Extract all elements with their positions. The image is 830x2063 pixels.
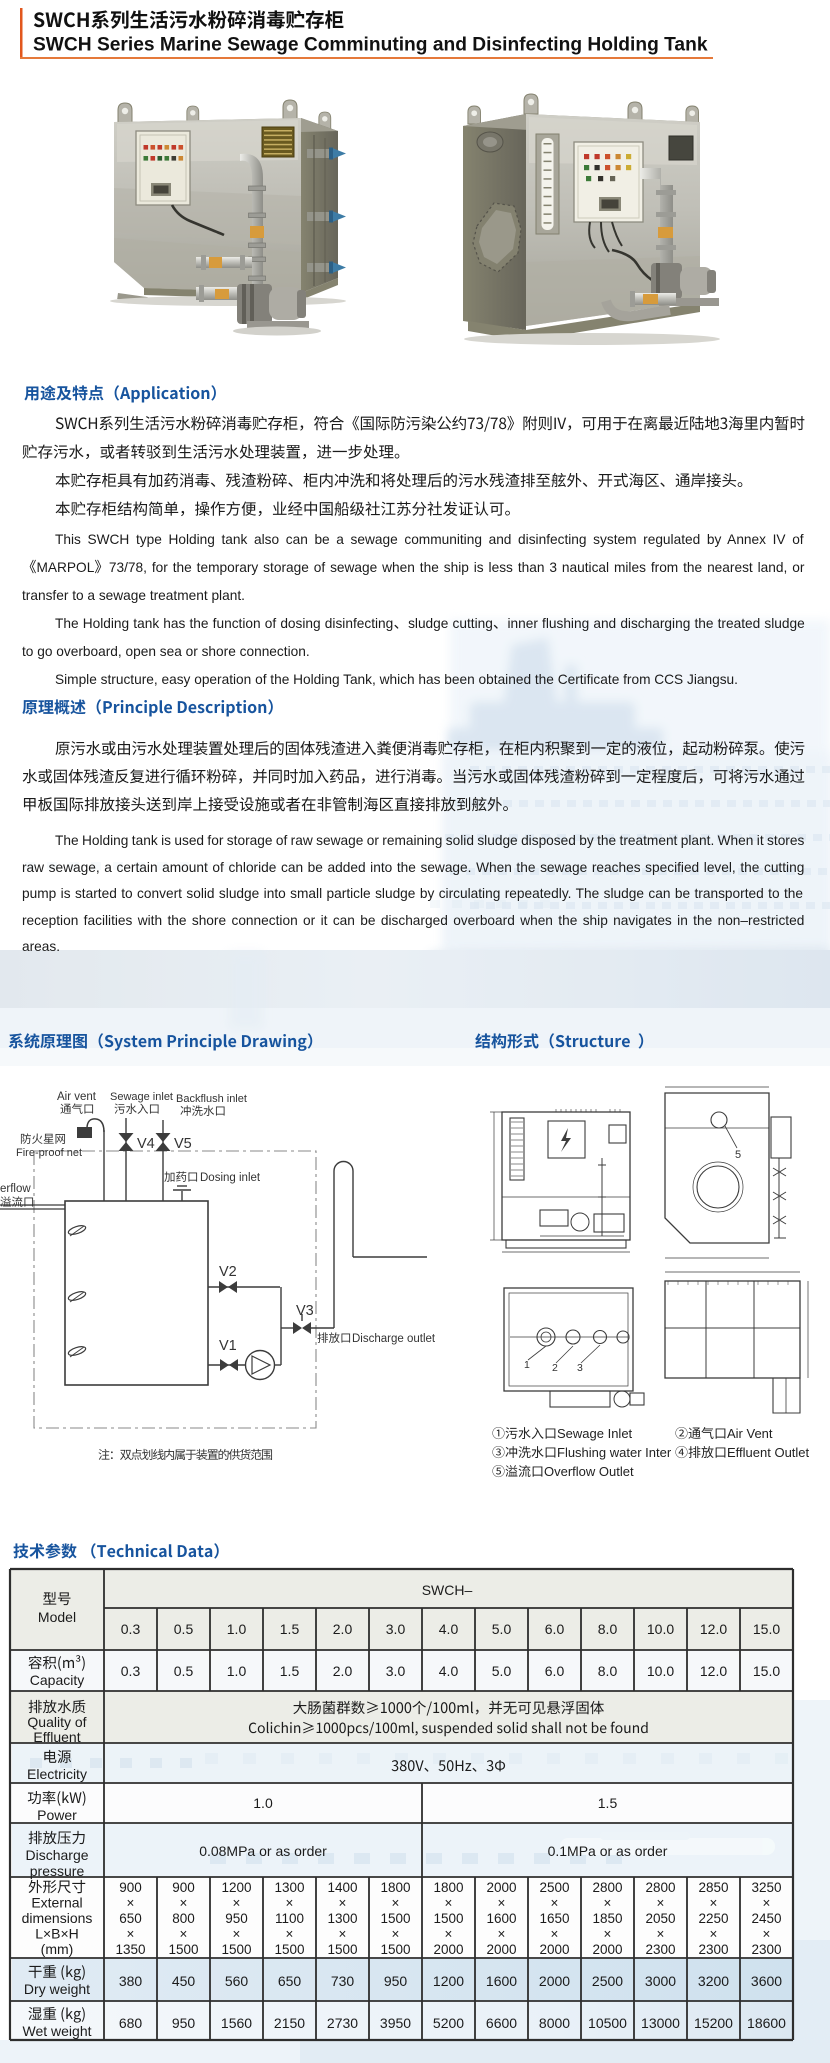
svg-text:1600: 1600 [486,1973,517,1989]
svg-text:1500: 1500 [168,1942,198,1957]
svg-text:1.5: 1.5 [598,1795,618,1811]
svg-text:areas.: areas. [22,939,60,954]
svg-text:×: × [286,1896,294,1911]
svg-text:×: × [498,1927,506,1942]
svg-text:Simple structure, easy operati: Simple structure, easy operation of the … [55,672,738,687]
svg-text:L×B×H: L×B×H [35,1926,79,1942]
svg-text:×: × [339,1927,347,1942]
svg-text:1200: 1200 [221,1880,251,1895]
svg-text:1500: 1500 [327,1942,357,1957]
svg-text:2.0: 2.0 [333,1621,353,1637]
svg-text:Capacity: Capacity [30,1672,84,1688]
svg-text:×: × [392,1927,400,1942]
svg-text:1: 1 [524,1359,530,1371]
svg-text:transfer to a sewage treatment: transfer to a sewage treatment plant. [22,588,245,603]
svg-text:2050: 2050 [645,1911,675,1926]
svg-text:Discharge outlet: Discharge outlet [352,1333,436,1345]
svg-text:0.3: 0.3 [121,1621,141,1637]
svg-text:dimensions: dimensions [22,1910,93,1926]
svg-text:2000: 2000 [539,1942,569,1957]
svg-text:×: × [710,1927,718,1942]
svg-text:1.0: 1.0 [227,1663,247,1679]
svg-text:MARPOL: MARPOL [37,560,95,575]
svg-text:13000: 13000 [641,2015,680,2031]
svg-text:×: × [498,1896,506,1911]
svg-text:6.0: 6.0 [545,1621,565,1637]
svg-text:1300: 1300 [327,1911,357,1926]
svg-text:1200: 1200 [433,1973,464,1989]
svg-text:3.0: 3.0 [386,1663,406,1679]
svg-text:3250: 3250 [751,1880,781,1895]
svg-text:Sewage inlet: Sewage inlet [110,1091,173,1103]
svg-text:1500: 1500 [433,1911,463,1926]
svg-text:×: × [180,1927,188,1942]
svg-text:Sewage Inlet: Sewage Inlet [557,1426,633,1441]
svg-text:×: × [180,1896,188,1911]
svg-text:Air Vent: Air Vent [727,1426,773,1441]
svg-text:×: × [551,1927,559,1942]
svg-text:Power: Power [37,1807,77,1823]
svg-text:3.0: 3.0 [386,1621,406,1637]
svg-text:650: 650 [119,1911,142,1926]
svg-text:reception facilities with the: reception facilities with the shore conn… [22,913,804,928]
svg-text:950: 950 [172,2015,196,2031]
svg-text:2300: 2300 [698,1942,728,1957]
svg-text:730: 730 [331,1973,355,1989]
svg-text:0.5: 0.5 [174,1663,194,1679]
svg-text:×: × [710,1896,718,1911]
svg-text:2500: 2500 [539,1880,569,1895]
svg-text:2500: 2500 [592,1973,623,1989]
svg-text:×: × [339,1896,347,1911]
svg-text:1850: 1850 [592,1911,622,1926]
svg-text:raw sewage, a certain amount o: raw sewage, a certain amount of chloride… [22,860,804,875]
svg-text:×: × [763,1896,771,1911]
svg-text:(mm): (mm) [41,1941,74,1957]
svg-text:pump is started to convert sol: pump is started to convert solid sludge … [22,886,803,901]
svg-text:This SWCH type Holding tank al: This SWCH type Holding tank also can be … [55,532,804,547]
svg-text:V1: V1 [219,1338,237,1354]
svg-text:1800: 1800 [433,1880,463,1895]
svg-text:3950: 3950 [380,2015,411,2031]
svg-text:SWCH–: SWCH– [422,1582,473,1598]
svg-text:950: 950 [384,1973,408,1989]
svg-text:1.5: 1.5 [280,1621,300,1637]
svg-text:1600: 1600 [486,1911,516,1926]
svg-text:×: × [763,1927,771,1942]
svg-text:2000: 2000 [433,1942,463,1957]
svg-text:15.0: 15.0 [753,1663,780,1679]
svg-text:2000: 2000 [486,1942,516,1957]
svg-text:12.0: 12.0 [700,1663,727,1679]
svg-text:4.0: 4.0 [439,1621,459,1637]
svg-text:3000: 3000 [645,1973,676,1989]
svg-text:2800: 2800 [592,1880,622,1895]
svg-text:1800: 1800 [380,1880,410,1895]
svg-text:380: 380 [119,1973,143,1989]
svg-text:×: × [657,1896,665,1911]
svg-text:×: × [127,1896,135,1911]
svg-text:1.0: 1.0 [227,1621,247,1637]
svg-text:2000: 2000 [486,1880,516,1895]
svg-text:10.0: 10.0 [647,1663,674,1679]
svg-text:Quality of: Quality of [27,1714,86,1730]
svg-text:1500: 1500 [380,1942,410,1957]
svg-text:2300: 2300 [751,1942,781,1957]
svg-text:4.0: 4.0 [439,1663,459,1679]
svg-text:8.0: 8.0 [598,1663,618,1679]
svg-text:5: 5 [735,1149,741,1161]
svg-text:×: × [392,1896,400,1911]
svg-text:1300: 1300 [274,1880,304,1895]
svg-text:1500: 1500 [221,1942,251,1957]
svg-text:×: × [657,1927,665,1942]
svg-text:2000: 2000 [539,1973,570,1989]
svg-text:5.0: 5.0 [492,1621,512,1637]
svg-text:Overflow Outlet: Overflow Outlet [544,1464,634,1479]
svg-text:6.0: 6.0 [545,1663,565,1679]
svg-text:73/78, for the temporary stora: 73/78, for the temporary storage of sewa… [109,560,805,575]
svg-text:10500: 10500 [588,2015,627,2031]
svg-text:×: × [604,1927,612,1942]
svg-text:×: × [445,1896,453,1911]
svg-text:0.08MPa or as order: 0.08MPa or as order [199,1843,327,1859]
svg-text:V3: V3 [296,1303,314,1319]
svg-text:1560: 1560 [221,2015,252,2031]
svg-text:800: 800 [172,1911,195,1926]
svg-text:8.0: 8.0 [598,1621,618,1637]
svg-text:×: × [445,1927,453,1942]
svg-text:2.0: 2.0 [333,1663,353,1679]
svg-text:Wet weight: Wet weight [23,2023,92,2039]
svg-text:10.0: 10.0 [647,1621,674,1637]
svg-text:1350: 1350 [115,1942,145,1957]
svg-text:The Holding tank has the funct: The Holding tank has the function of dos… [55,616,393,631]
svg-text:2150: 2150 [274,2015,305,2031]
svg-text:×: × [233,1896,241,1911]
svg-text:×: × [604,1896,612,1911]
svg-text:to go overboard, open sea or s: to go overboard, open sea or shore conne… [22,644,310,659]
svg-text:Effluent: Effluent [33,1729,80,1745]
svg-text:×: × [233,1927,241,1942]
svg-text:8000: 8000 [539,2015,570,2031]
svg-text:18600: 18600 [747,2015,786,2031]
svg-text:erflow: erflow [0,1183,31,1195]
svg-text:900: 900 [119,1880,142,1895]
svg-text:2000: 2000 [592,1942,622,1957]
svg-text:Discharge: Discharge [25,1847,88,1863]
svg-text:2800: 2800 [645,1880,675,1895]
svg-text:2730: 2730 [327,2015,358,2031]
svg-text:5200: 5200 [433,2015,464,2031]
svg-text:×: × [286,1927,294,1942]
svg-text:pressure: pressure [30,1863,85,1879]
svg-text:1650: 1650 [539,1911,569,1926]
svg-text:0.3: 0.3 [121,1663,141,1679]
svg-text:650: 650 [278,1973,302,1989]
svg-text:3600: 3600 [751,1973,782,1989]
svg-text:15200: 15200 [694,2015,733,2031]
svg-text:2850: 2850 [698,1880,728,1895]
svg-text:450: 450 [172,1973,196,1989]
svg-text:External: External [31,1895,82,1911]
svg-text:0.5: 0.5 [174,1621,194,1637]
svg-text:0.1MPa or as order: 0.1MPa or as order [548,1843,668,1859]
svg-text:Air vent: Air vent [57,1091,97,1103]
svg-text:560: 560 [225,1973,249,1989]
svg-text:V2: V2 [219,1264,237,1280]
svg-text:V4: V4 [137,1136,155,1152]
svg-text:Dry weight: Dry weight [24,1981,90,1997]
svg-text:1.5: 1.5 [280,1663,300,1679]
svg-text:2250: 2250 [698,1911,728,1926]
svg-text:1500: 1500 [380,1911,410,1926]
svg-text:950: 950 [225,1911,248,1926]
svg-text:2450: 2450 [751,1911,781,1926]
svg-text:5.0: 5.0 [492,1663,512,1679]
svg-text:The Holding tank is used for s: The Holding tank is used for storage of … [55,833,804,848]
svg-text:Backflush inlet: Backflush inlet [176,1093,247,1105]
svg-text:1.0: 1.0 [253,1795,273,1811]
svg-text:1500: 1500 [274,1942,304,1957]
svg-text:inner flushing and discharging: inner flushing and discharging the treat… [507,616,804,631]
svg-text:1100: 1100 [275,1911,304,1926]
svg-text:Dosing inlet: Dosing inlet [200,1172,261,1184]
svg-text:SWCH Series Marine Sewage Comm: SWCH Series Marine Sewage Comminuting an… [33,35,708,56]
svg-text:15.0: 15.0 [753,1621,780,1637]
svg-text:1400: 1400 [327,1880,357,1895]
svg-text:×: × [551,1896,559,1911]
svg-text:V5: V5 [174,1136,192,1152]
svg-text:680: 680 [119,2015,143,2031]
svg-text:Fire-proof net: Fire-proof net [16,1147,82,1159]
svg-text:×: × [127,1927,135,1942]
svg-text:900: 900 [172,1880,195,1895]
svg-text:sludge cutting: sludge cutting [408,616,493,631]
svg-text:Electricity: Electricity [27,1766,87,1782]
svg-text:3: 3 [577,1362,583,1374]
svg-text:12.0: 12.0 [700,1621,727,1637]
svg-text:Flushing water Inter: Flushing water Inter [557,1445,672,1460]
svg-text:Model: Model [38,1609,76,1625]
svg-text:6600: 6600 [486,2015,517,2031]
svg-text:Effluent Outlet: Effluent Outlet [727,1445,810,1460]
svg-text:2: 2 [552,1362,558,1374]
svg-text:3200: 3200 [698,1973,729,1989]
svg-text:2300: 2300 [645,1942,675,1957]
